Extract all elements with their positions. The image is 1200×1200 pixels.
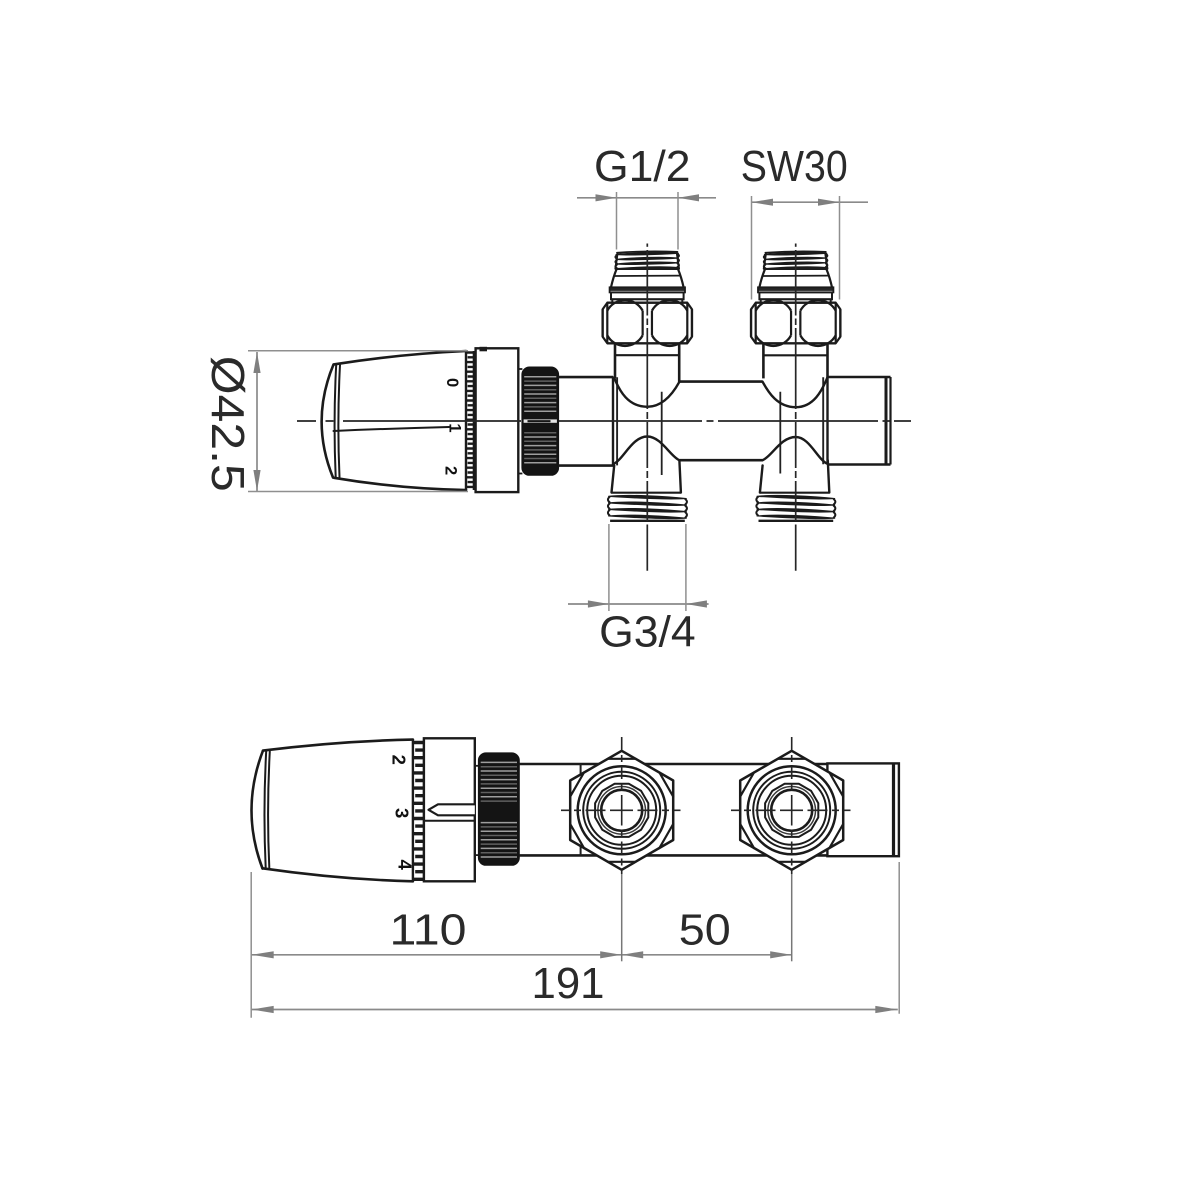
svg-text:0: 0	[443, 378, 461, 387]
svg-text:3: 3	[392, 808, 413, 818]
svg-text:1: 1	[446, 423, 464, 432]
svg-text:191: 191	[532, 959, 605, 1008]
svg-text:2: 2	[389, 755, 410, 765]
svg-text:2: 2	[441, 466, 459, 475]
svg-text:4: 4	[395, 859, 416, 870]
svg-text:Ø42.5: Ø42.5	[202, 356, 254, 492]
svg-text:SW30: SW30	[741, 142, 848, 191]
svg-text:50: 50	[679, 906, 731, 955]
svg-text:110: 110	[390, 906, 467, 955]
svg-text:G1/2: G1/2	[594, 142, 691, 191]
svg-text:G3/4: G3/4	[599, 608, 696, 657]
